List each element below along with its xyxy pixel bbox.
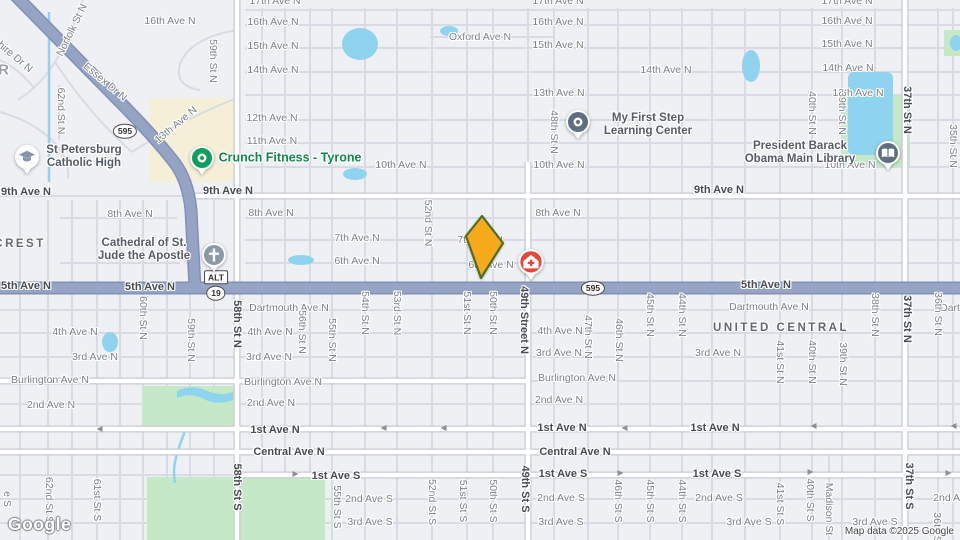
google-logo[interactable]: Google [8, 514, 71, 535]
cathedral-of-st-jude-the-apostle-pin[interactable] [201, 242, 227, 279]
medical-icon [517, 248, 545, 282]
dot-icon [565, 109, 591, 141]
cross-icon [201, 242, 227, 274]
book-icon [875, 140, 901, 172]
president-barack-obama-main-library-pin[interactable] [875, 140, 901, 177]
president-barack-obama-main-library-label[interactable]: President BarackObama Main Library [745, 140, 856, 166]
poi-label-line: Obama Main Library [745, 153, 856, 166]
graduation-cap-icon [14, 144, 40, 176]
dot-icon [189, 145, 215, 177]
poi-layer: St PetersburgCatholic HighCrunch Fitness… [0, 0, 960, 540]
crunch-fitness-tyrone-label[interactable]: Crunch Fitness - Tyrone [219, 152, 362, 165]
my-first-step-learning-center-label[interactable]: My First StepLearning Center [604, 112, 692, 138]
poi-label-line: Learning Center [604, 125, 692, 138]
st-petersburg-catholic-high-pin[interactable] [14, 144, 40, 181]
crunch-fitness-tyrone-pin[interactable] [189, 145, 215, 182]
medical-clinic-marker-pin[interactable] [517, 248, 545, 287]
map-viewport[interactable]: 17th Ave N17th Ave N17th Ave N16th Ave N… [0, 0, 960, 540]
cathedral-of-st-jude-the-apostle-label[interactable]: Cathedral of St.Jude the Apostle [98, 237, 190, 263]
poi-label-line: Crunch Fitness - Tyrone [219, 152, 362, 165]
poi-label-line: St Petersburg [46, 144, 121, 157]
poi-label-line: President Barack [745, 140, 856, 153]
poi-label-line: My First Step [604, 112, 692, 125]
my-first-step-learning-center-pin[interactable] [565, 109, 591, 146]
poi-label-line: Catholic High [46, 157, 121, 170]
st-petersburg-catholic-high-label[interactable]: St PetersburgCatholic High [46, 144, 121, 170]
poi-label-line: Jude the Apostle [98, 250, 190, 263]
map-attribution: Map data ©2025 Google [845, 526, 954, 537]
poi-label-line: Cathedral of St. [98, 237, 190, 250]
